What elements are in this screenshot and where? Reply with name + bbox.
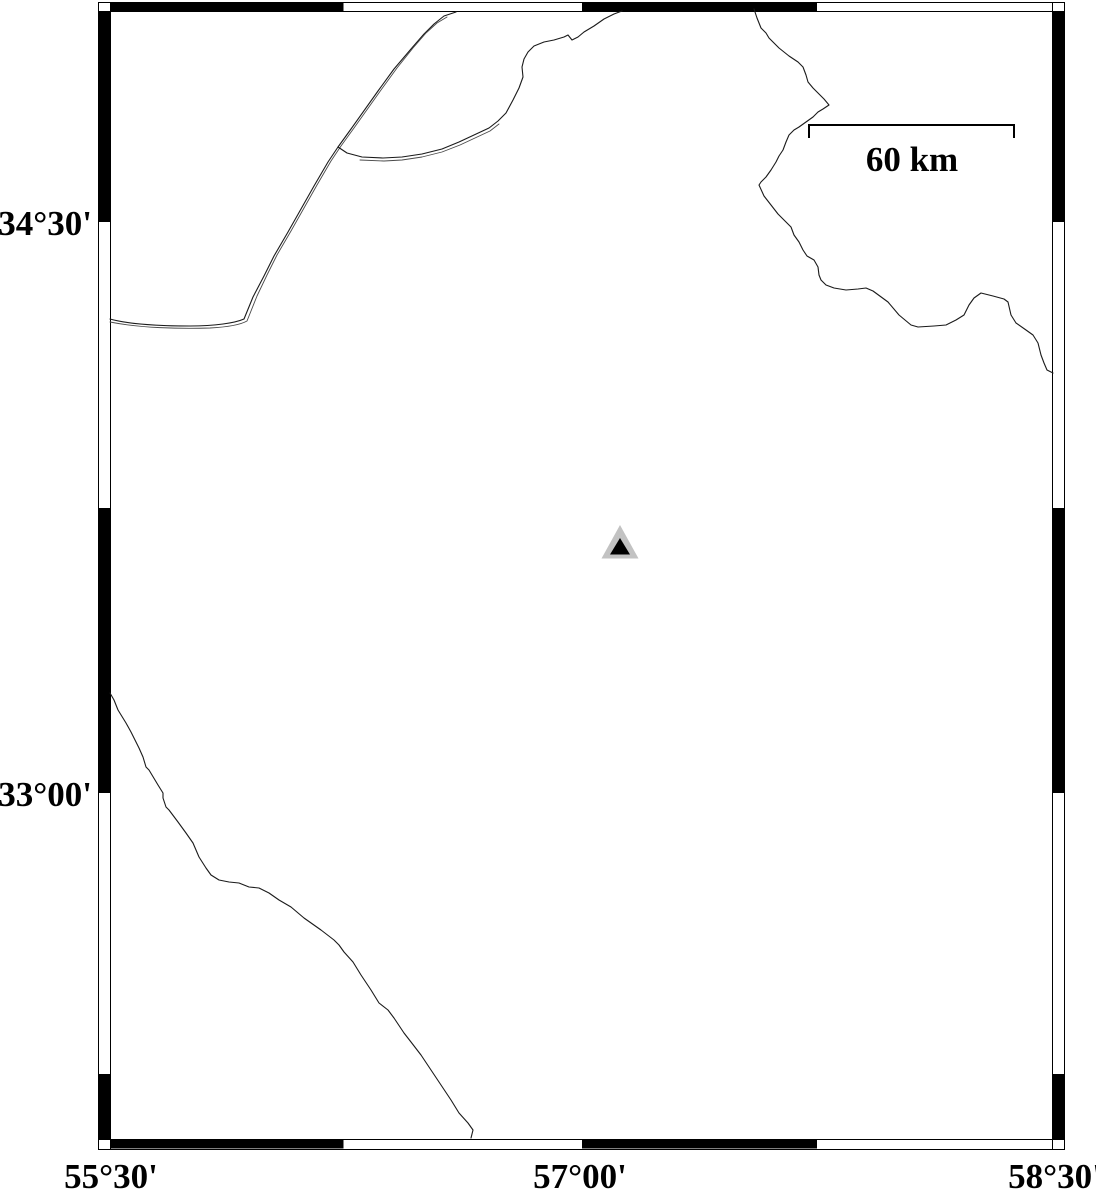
latitude-label: 34°30' [0, 204, 92, 243]
scale-bar-label: 60 km [866, 140, 958, 179]
frame-tick-segment [99, 508, 110, 793]
frame-tick-segment [582, 1140, 817, 1149]
frame-tick-segment [111, 3, 344, 12]
frame-tick-segment [1053, 1074, 1064, 1140]
map-figure: 60 km 34°30' 33°00' 55°30' 57°00' 58°30' [0, 0, 1096, 1189]
map-canvas: 60 km 34°30' 33°00' 55°30' 57°00' 58°30' [0, 0, 1096, 1189]
frame-tick-segment [582, 3, 817, 12]
frame-tick-segment [99, 12, 110, 223]
frame-tick-segment [111, 1140, 344, 1149]
longitude-label: 57°00' [533, 1157, 627, 1189]
frame-tick-segment [1053, 508, 1064, 793]
frame-tick-segment [99, 1074, 110, 1140]
frame-tick-segment [1053, 12, 1064, 223]
longitude-label: 55°30' [64, 1157, 158, 1189]
latitude-label: 33°00' [0, 775, 92, 814]
longitude-label: 58°30' [1008, 1157, 1096, 1189]
